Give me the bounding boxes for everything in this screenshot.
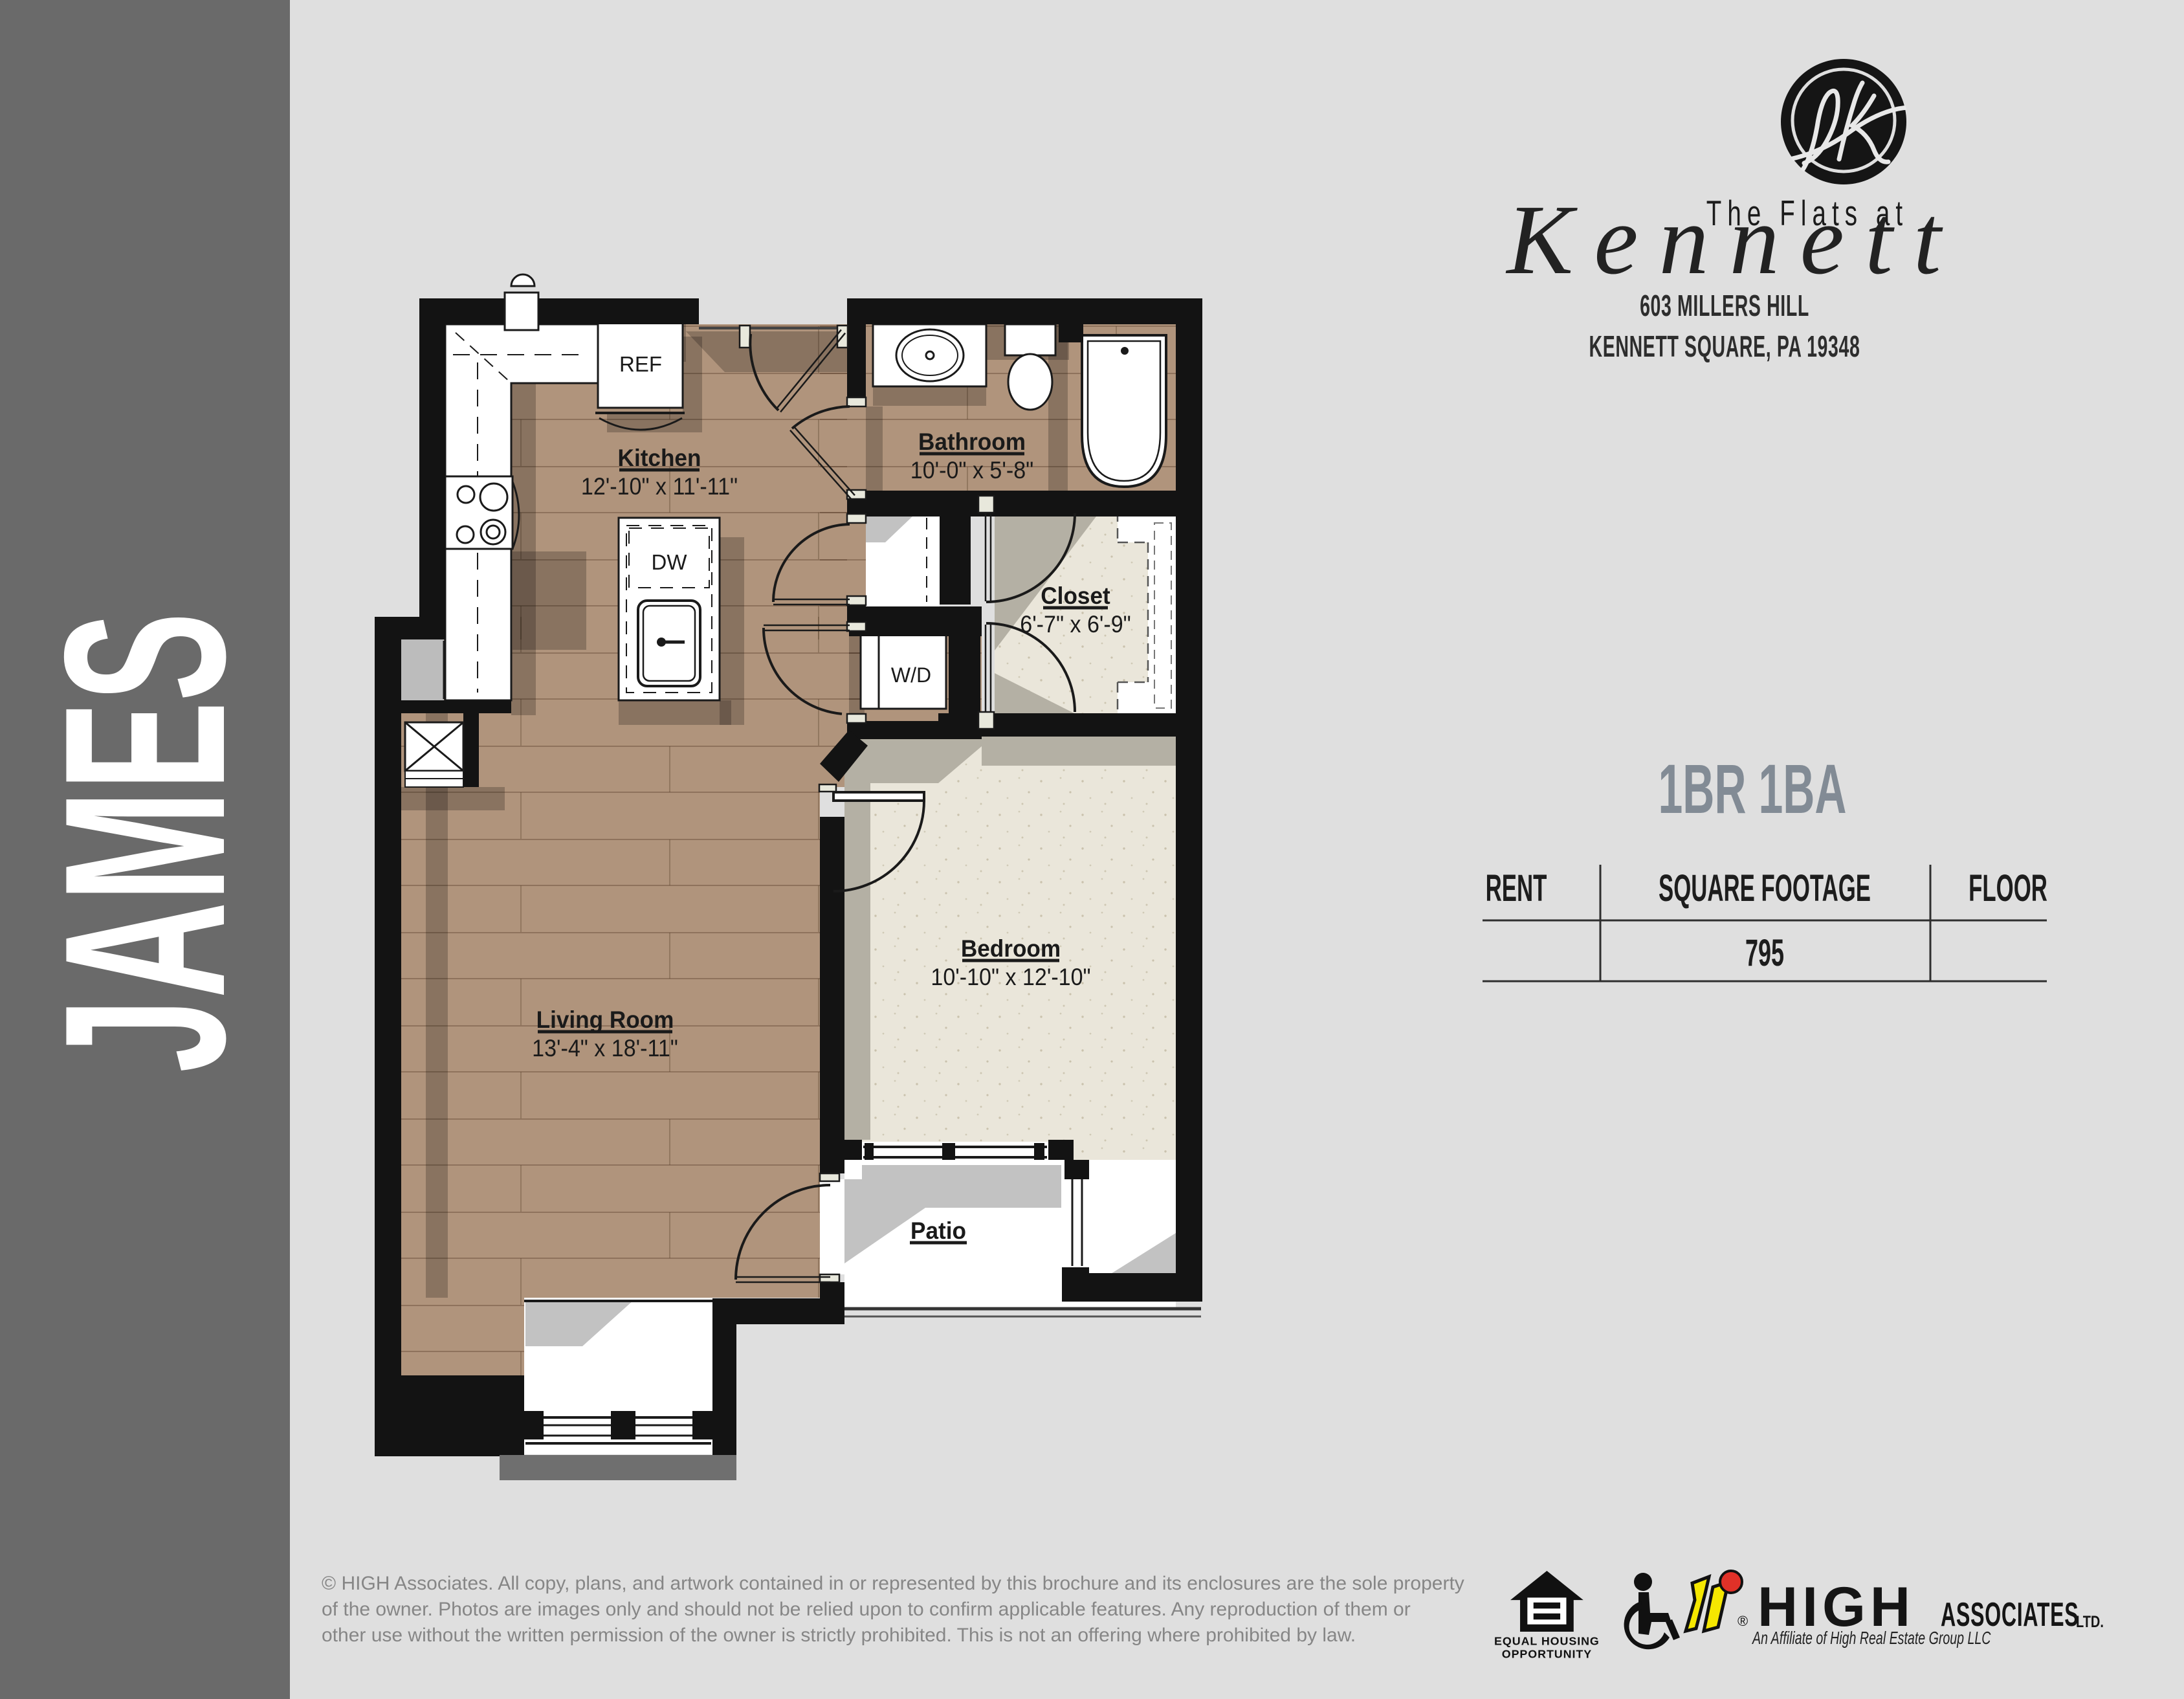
svg-text:10'-0" x 5'-8": 10'-0" x 5'-8" [910,457,1033,484]
svg-text:W/D: W/D [891,663,931,687]
svg-text:An Affiliate of High Real Esta: An Affiliate of High Real Estate Group L… [1751,1628,1991,1649]
svg-text:SQUARE FOOTAGE: SQUARE FOOTAGE [1659,868,1871,909]
svg-text:FLOOR: FLOOR [1969,868,2047,909]
svg-text:Kitchen: Kitchen [618,444,701,471]
svg-text:795: 795 [1745,932,1784,974]
svg-text:KENNETT SQUARE, PA 19348: KENNETT SQUARE, PA 19348 [1589,330,1860,364]
svg-text:RENT: RENT [1486,868,1547,909]
svg-text:OPPORTUNITY: OPPORTUNITY [1502,1647,1592,1660]
svg-text:Bedroom: Bedroom [961,935,1061,962]
svg-text:REF: REF [619,352,662,376]
svg-text:Closet: Closet [1041,582,1110,609]
svg-text:EQUAL HOUSING: EQUAL HOUSING [1494,1635,1600,1648]
svg-text:Bathroom: Bathroom [918,428,1026,455]
svg-text:other use without the written: other use without the written permission… [322,1625,1356,1646]
svg-text:LTD.: LTD. [2076,1613,2104,1631]
svg-text:6'-7" x 6'-9": 6'-7" x 6'-9" [1020,611,1131,638]
svg-text:Patio: Patio [910,1217,966,1244]
svg-text:1BR 1BA: 1BR 1BA [1658,750,1846,828]
svg-text:603 MILLERS HILL: 603 MILLERS HILL [1640,289,1809,323]
svg-text:12'-10" x 11'-11": 12'-10" x 11'-11" [581,473,738,500]
svg-text:Kennett: Kennett [1506,185,1962,295]
svg-text:Living Room: Living Room [536,1006,674,1033]
svg-text:®: ® [1737,1613,1748,1629]
svg-text:of the owner. Photos are image: of the owner. Photos are images only and… [322,1599,1411,1620]
svg-text:DW: DW [652,550,688,574]
svg-text:JAMES: JAMES [17,612,273,1072]
svg-text:© HIGH Associates. All copy, p: © HIGH Associates. All copy, plans, and … [322,1573,1464,1594]
svg-text:10'-10" x 12'-10": 10'-10" x 12'-10" [931,964,1090,991]
svg-text:13'-4" x 18'-11": 13'-4" x 18'-11" [532,1035,678,1062]
